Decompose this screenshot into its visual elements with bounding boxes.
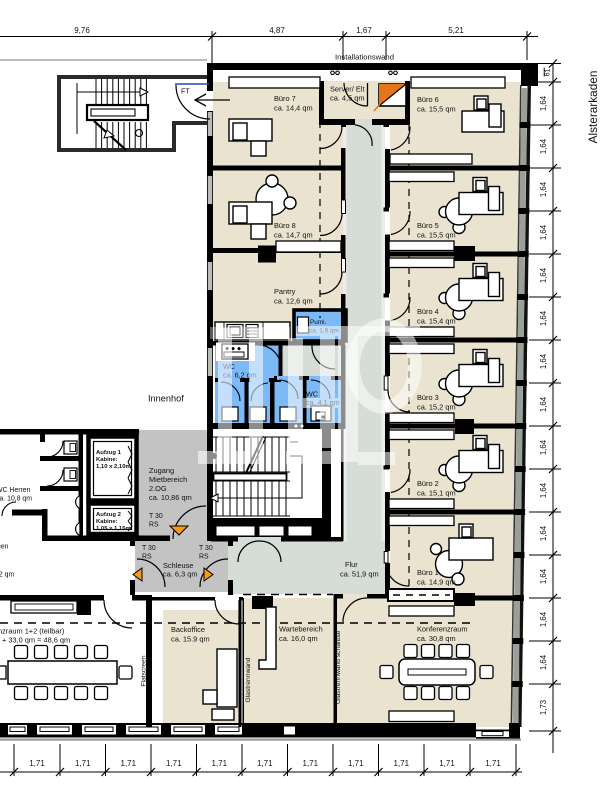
svg-text:Server/ Elt: Server/ Elt xyxy=(330,85,365,94)
svg-text:Installationswand: Installationswand xyxy=(335,53,394,62)
svg-text:1,64: 1,64 xyxy=(539,95,548,111)
svg-text:ca. 12,6 qm: ca. 12,6 qm xyxy=(274,297,313,306)
svg-text:ca. 30,8 qm: ca. 30,8 qm xyxy=(417,634,456,643)
svg-text:Kabine:: Kabine: xyxy=(96,519,118,525)
svg-text:Büro 7: Büro 7 xyxy=(274,94,296,103)
svg-text:FT: FT xyxy=(181,87,190,96)
svg-text:61: 61 xyxy=(545,69,552,77)
svg-text:Flur: Flur xyxy=(345,560,358,569)
svg-text:RS: RS xyxy=(142,554,152,561)
svg-text:Alsterarkaden: Alsterarkaden xyxy=(586,71,600,144)
svg-text:1,64: 1,64 xyxy=(539,482,548,498)
svg-text:Konferenzraum: Konferenzraum xyxy=(417,625,468,634)
svg-text:Aufzug 2: Aufzug 2 xyxy=(96,512,122,518)
svg-text:T 30: T 30 xyxy=(199,545,213,552)
svg-text:Büro 8: Büro 8 xyxy=(274,221,296,230)
svg-text:Zugang: Zugang xyxy=(149,466,174,475)
svg-text:T 30: T 30 xyxy=(149,513,163,520)
svg-text:1,64: 1,64 xyxy=(539,611,548,627)
svg-text:1,64: 1,64 xyxy=(539,181,548,197)
svg-text:1,10 x 2,10m: 1,10 x 2,10m xyxy=(96,464,131,470)
svg-text:een: een xyxy=(0,544,9,551)
svg-text:1,64: 1,64 xyxy=(539,310,548,326)
svg-text:Büro 3: Büro 3 xyxy=(417,393,439,402)
svg-text:ca. 15,5 qm: ca. 15,5 qm xyxy=(417,105,456,114)
svg-text:ca. 14,4 qm: ca. 14,4 qm xyxy=(274,104,313,113)
svg-text:4,87: 4,87 xyxy=(269,26,285,35)
svg-text:ca. 15,5 qm: ca. 15,5 qm xyxy=(417,231,456,240)
svg-text:1,64: 1,64 xyxy=(539,224,548,240)
svg-text:2.OG: 2.OG xyxy=(149,484,167,493)
svg-text:Glastrennwand schaltbar: Glastrennwand schaltbar xyxy=(335,629,342,704)
svg-text:Glastrennwand: Glastrennwand xyxy=(245,657,252,702)
svg-text:1,64: 1,64 xyxy=(539,525,548,541)
svg-text:ca. 15.9 qm: ca. 15.9 qm xyxy=(171,635,210,644)
svg-text:Büro 5: Büro 5 xyxy=(417,221,439,230)
svg-text:Büro 2: Büro 2 xyxy=(417,479,439,488)
svg-text:1,71: 1,71 xyxy=(212,759,228,768)
svg-text:ca. 14,7 qm: ca. 14,7 qm xyxy=(274,231,313,240)
svg-text:ca. 16,0 qm: ca. 16,0 qm xyxy=(279,634,318,643)
svg-text:1,71: 1,71 xyxy=(485,759,501,768)
svg-text:,2 qm: ,2 qm xyxy=(0,572,14,579)
svg-text:1,71: 1,71 xyxy=(29,759,45,768)
svg-text:1,67: 1,67 xyxy=(356,26,372,35)
svg-text:Büro 1: Büro 1 xyxy=(417,568,439,577)
svg-text:9,76: 9,76 xyxy=(74,26,90,35)
svg-text:1,64: 1,64 xyxy=(539,568,548,584)
svg-text:1,71: 1,71 xyxy=(303,759,319,768)
svg-text:Flatscreen: Flatscreen xyxy=(141,655,148,687)
svg-text:1,71: 1,71 xyxy=(75,759,91,768)
svg-text:RS: RS xyxy=(149,522,159,529)
svg-text:1,64: 1,64 xyxy=(539,353,548,369)
svg-text:ca. 10,86 qm: ca. 10,86 qm xyxy=(149,493,192,502)
svg-text:ca. 14,9 qm: ca. 14,9 qm xyxy=(417,578,456,587)
svg-text:1,71: 1,71 xyxy=(166,759,182,768)
svg-text:ca. 15,2 qm: ca. 15,2 qm xyxy=(417,403,456,412)
svg-text:T 30: T 30 xyxy=(142,545,156,552)
svg-text:ca. 15,1 qm: ca. 15,1 qm xyxy=(417,489,456,498)
svg-text:Büro 6: Büro 6 xyxy=(417,95,439,104)
svg-text:1,05 x 1,15m: 1,05 x 1,15m xyxy=(96,526,131,532)
svg-text:1,64: 1,64 xyxy=(539,439,548,455)
svg-text:1,64: 1,64 xyxy=(539,654,548,670)
svg-text:+ 33,0 qm = 48,6 qm: + 33,0 qm = 48,6 qm xyxy=(2,636,70,645)
svg-text:Büro 4: Büro 4 xyxy=(417,307,439,316)
svg-text:WC Herren: WC Herren xyxy=(0,487,31,494)
svg-text:1,64: 1,64 xyxy=(539,396,548,412)
svg-text:ca. 51,9 qm: ca. 51,9 qm xyxy=(340,570,379,579)
svg-text:Innenhof: Innenhof xyxy=(148,394,184,404)
svg-text:nzraum 1+2 (teilbar): nzraum 1+2 (teilbar) xyxy=(0,627,64,636)
svg-text:Backoffice: Backoffice xyxy=(171,625,205,634)
svg-text:1,71: 1,71 xyxy=(394,759,410,768)
svg-text:Aufzug 1: Aufzug 1 xyxy=(96,450,122,456)
svg-text:Wartebereich: Wartebereich xyxy=(279,625,323,634)
svg-text:Kabine:: Kabine: xyxy=(96,457,118,463)
svg-text:1,71: 1,71 xyxy=(121,759,137,768)
svg-text:1,71: 1,71 xyxy=(439,759,455,768)
svg-text:ca. 6,3 qm: ca. 6,3 qm xyxy=(163,570,198,579)
svg-text:Pumi.: Pumi. xyxy=(310,319,327,326)
svg-text:RS: RS xyxy=(199,554,209,561)
svg-text:1,73: 1,73 xyxy=(539,700,548,715)
svg-text:ca. 10,8 qm: ca. 10,8 qm xyxy=(0,496,32,503)
svg-text:5,21: 5,21 xyxy=(448,26,464,35)
svg-text:1,64: 1,64 xyxy=(539,138,548,154)
svg-text:ca. 4,5 qm: ca. 4,5 qm xyxy=(330,94,365,103)
svg-text:1,71: 1,71 xyxy=(348,759,364,768)
svg-text:1,71: 1,71 xyxy=(257,759,273,768)
svg-text:Mietbereich: Mietbereich xyxy=(149,475,187,484)
svg-text:ca. 15,4 qm: ca. 15,4 qm xyxy=(417,317,456,326)
svg-text:Pantry: Pantry xyxy=(274,287,296,296)
svg-text:1,64: 1,64 xyxy=(539,267,548,283)
